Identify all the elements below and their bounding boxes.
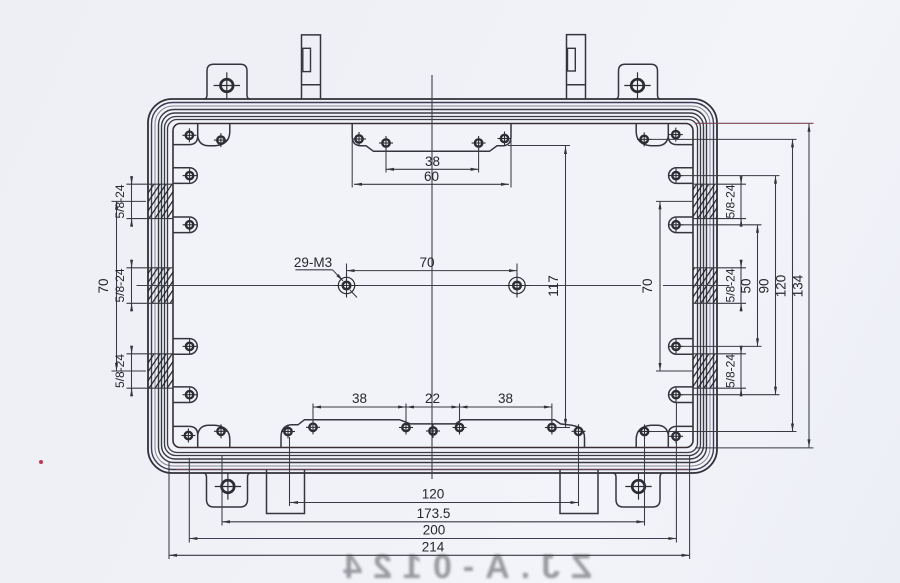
svg-text:173.5: 173.5 xyxy=(417,506,451,521)
svg-text:60: 60 xyxy=(424,169,439,184)
svg-text:29-M3: 29-M3 xyxy=(294,255,332,270)
svg-text:5/8-24: 5/8-24 xyxy=(113,268,127,302)
svg-text:200: 200 xyxy=(423,523,446,538)
svg-text:70: 70 xyxy=(96,278,111,293)
svg-text:5/8-24: 5/8-24 xyxy=(113,354,127,388)
svg-text:22: 22 xyxy=(425,391,440,406)
svg-text:120: 120 xyxy=(422,487,445,502)
svg-text:50: 50 xyxy=(739,278,754,293)
svg-text:117: 117 xyxy=(546,275,561,297)
svg-text:120: 120 xyxy=(774,275,789,298)
svg-text:5/8-24: 5/8-24 xyxy=(724,184,738,218)
svg-text:90: 90 xyxy=(757,278,772,293)
svg-text:134: 134 xyxy=(791,274,806,297)
svg-text:70: 70 xyxy=(419,255,434,270)
svg-text:5/8-24: 5/8-24 xyxy=(724,268,738,302)
svg-text:5/8-24: 5/8-24 xyxy=(724,354,738,388)
svg-text:38: 38 xyxy=(425,154,440,169)
svg-text:5/8-24: 5/8-24 xyxy=(113,184,127,218)
svg-text:38: 38 xyxy=(352,391,367,406)
svg-text:70: 70 xyxy=(640,278,655,293)
svg-text:214: 214 xyxy=(422,539,445,554)
svg-text:38: 38 xyxy=(498,391,513,406)
svg-text:ZJ.A-0124: ZJ.A-0124 xyxy=(332,548,592,583)
